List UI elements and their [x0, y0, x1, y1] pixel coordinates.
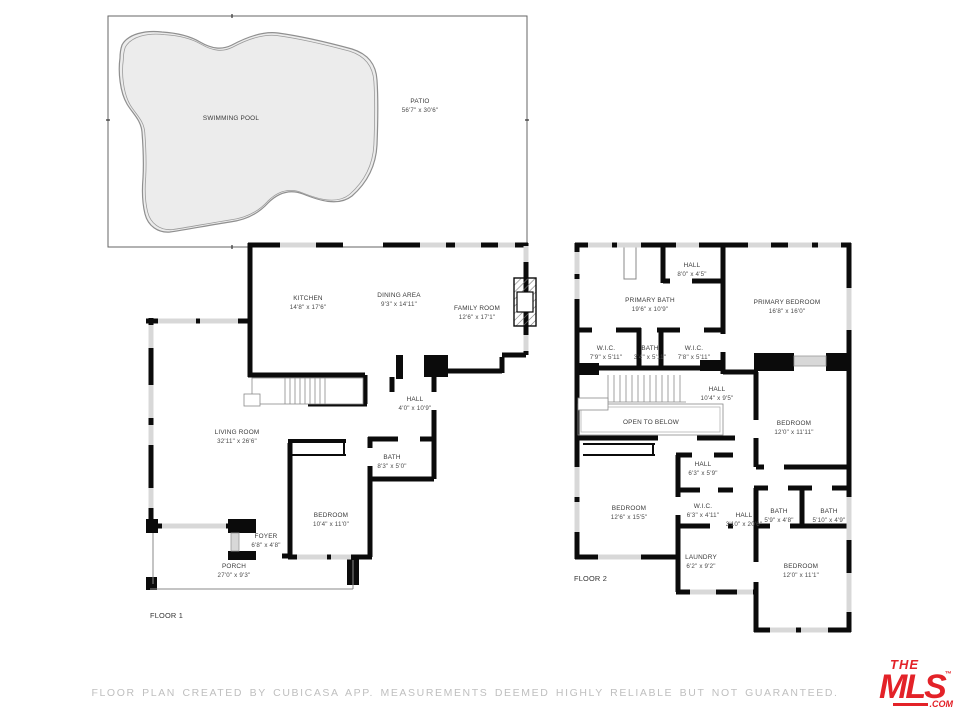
room-label: HALL: [695, 461, 712, 468]
fireplace-icon: [514, 278, 536, 326]
room-label: BATH: [641, 345, 659, 352]
primary-bath-closet: [624, 247, 636, 279]
room-label: HALL: [684, 262, 701, 269]
room-dims: 14'8" x 17'6": [290, 304, 327, 311]
room-dims: 5'10" x 4'9": [813, 517, 846, 524]
room-dims: 32'11" x 26'6": [217, 438, 257, 445]
room-dims: 8'3" x 5'0": [377, 463, 406, 470]
floor2-stairs: [578, 375, 723, 435]
room-dims: 27'0" x 9'3": [218, 572, 251, 579]
room-label: W.I.C.: [597, 345, 616, 352]
room-label: BEDROOM: [314, 512, 348, 519]
room-label: HALL: [736, 512, 753, 519]
room-label: PRIMARY BEDROOM: [754, 299, 821, 306]
room-dims: 12'0" x 11'1": [783, 572, 819, 579]
room-label: LIVING ROOM: [215, 429, 260, 436]
room-dims: 8'0" x 4'5": [677, 271, 706, 278]
room-label: KITCHEN: [293, 295, 323, 302]
foyer-window: [231, 533, 239, 551]
floor-plan-canvas: SWIMMING POOL PATIO 56'7" x 30'6": [0, 0, 960, 720]
room-dims: 12'6" x 17'1": [459, 314, 496, 321]
room-dims: 3'10" x 20'6": [726, 521, 763, 528]
room-label: BATH: [383, 454, 401, 461]
room-dims: 6'2" x 9'2": [686, 563, 715, 570]
floor2-label: FLOOR 2: [574, 574, 607, 583]
floor2-closet-lines: [583, 444, 655, 455]
room-dims: 10'4" x 9'5": [701, 395, 734, 402]
floor2-room-labels: HALL 8'0" x 4'5" PRIMARY BATH 19'6" x 10…: [590, 262, 846, 579]
room-label: HALL: [407, 396, 424, 403]
swimming-pool-shape: [119, 32, 377, 233]
room-dims: 19'6" x 10'9": [632, 306, 669, 313]
room-dims: 6'3" x 4'11": [687, 512, 719, 519]
room-dims: 6'3" x 5'9": [688, 470, 717, 477]
room-label: FOYER: [254, 533, 277, 540]
room-dims: 6'8" x 4'8": [251, 542, 280, 549]
room-label: W.I.C.: [685, 345, 704, 352]
room-dims: 7'9" x 5'11": [590, 354, 622, 361]
floor1-room-labels: KITCHEN 14'8" x 17'6" DINING AREA 9'3" x…: [215, 292, 500, 579]
mls-logo: THE MLS™ .COM: [879, 658, 953, 709]
room-label: OPEN TO BELOW: [623, 419, 680, 426]
pool-label: SWIMMING POOL: [203, 115, 259, 122]
room-label: FAMILY ROOM: [454, 305, 500, 312]
room-label: HALL: [709, 386, 726, 393]
floor1-stairs: [244, 378, 363, 406]
room-label: BEDROOM: [612, 505, 646, 512]
bedroom-window: [794, 356, 826, 366]
room-label: BATH: [820, 508, 838, 515]
room-dims: 7'8" x 5'11": [678, 354, 710, 361]
room-dims: 3'4" x 5'11": [634, 354, 666, 361]
room-dims: 4'0" x 10'9": [399, 405, 432, 412]
room-dims: 9'3" x 14'11": [381, 301, 417, 308]
room-label: W.I.C.: [694, 503, 713, 510]
room-label: PRIMARY BATH: [625, 297, 675, 304]
room-label: LAUNDRY: [685, 554, 717, 561]
room-label: BATH: [770, 508, 788, 515]
room-dims: 12'0" x 11'11": [774, 429, 813, 436]
room-label: BEDROOM: [784, 563, 818, 570]
svg-text:PATIO: PATIO: [410, 98, 429, 105]
floor1-label: FLOOR 1: [150, 611, 183, 620]
mls-logo-mls: MLS™: [879, 670, 953, 704]
room-label: PORCH: [222, 563, 246, 570]
disclaimer-text: FLOOR PLAN CREATED BY CUBICASA APP. MEAS…: [0, 687, 930, 699]
room-dims: 16'8" x 16'0": [769, 308, 806, 315]
room-label: DINING AREA: [377, 292, 421, 299]
room-label: BEDROOM: [777, 420, 811, 427]
room-dims: 10'4" x 11'0": [313, 521, 349, 528]
svg-text:56'7" x 30'6": 56'7" x 30'6": [402, 107, 439, 114]
room-dims: 5'9" x 4'8": [764, 517, 793, 524]
room-dims: 12'6" x 15'5": [611, 514, 648, 521]
trademark-symbol: ™: [945, 671, 950, 678]
floor-plan-page: SWIMMING POOL PATIO 56'7" x 30'6": [0, 0, 960, 720]
